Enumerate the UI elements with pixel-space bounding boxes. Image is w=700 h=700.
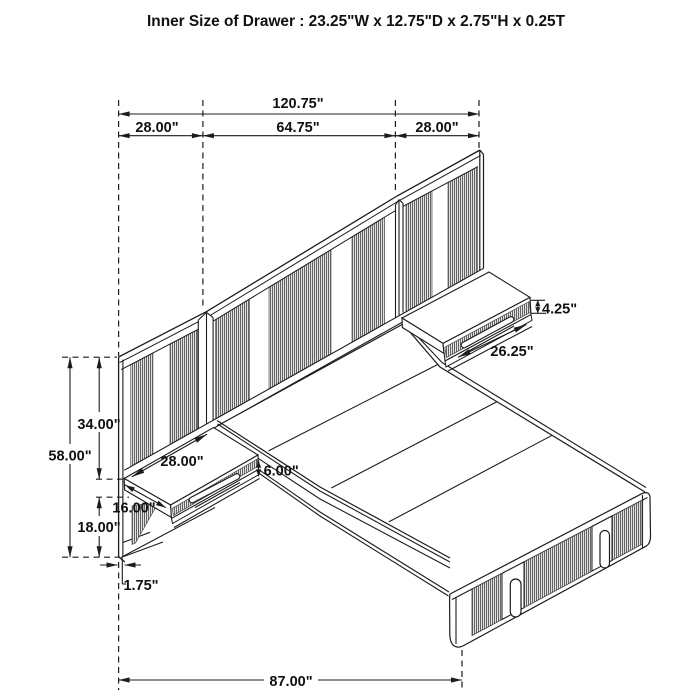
svg-text:28.00": 28.00" — [415, 120, 458, 136]
svg-text:64.75": 64.75" — [276, 120, 319, 136]
svg-text:28.00": 28.00" — [160, 454, 203, 470]
svg-text:58.00": 58.00" — [48, 449, 91, 465]
svg-text:Inner Size of Drawer : 23.25"W: Inner Size of Drawer : 23.25"W x 12.75"D… — [147, 13, 566, 30]
svg-text:34.00": 34.00" — [77, 417, 120, 433]
svg-text:6.00": 6.00" — [264, 464, 299, 480]
svg-text:1.75": 1.75" — [123, 578, 158, 594]
svg-text:18.00": 18.00" — [77, 520, 120, 536]
svg-text:87.00": 87.00" — [269, 674, 312, 690]
svg-text:16.00": 16.00" — [112, 501, 155, 517]
svg-text:28.00": 28.00" — [135, 120, 178, 136]
svg-text:26.25": 26.25" — [490, 344, 533, 360]
svg-text:4.25": 4.25" — [542, 302, 577, 318]
svg-text:120.75": 120.75" — [272, 96, 323, 112]
